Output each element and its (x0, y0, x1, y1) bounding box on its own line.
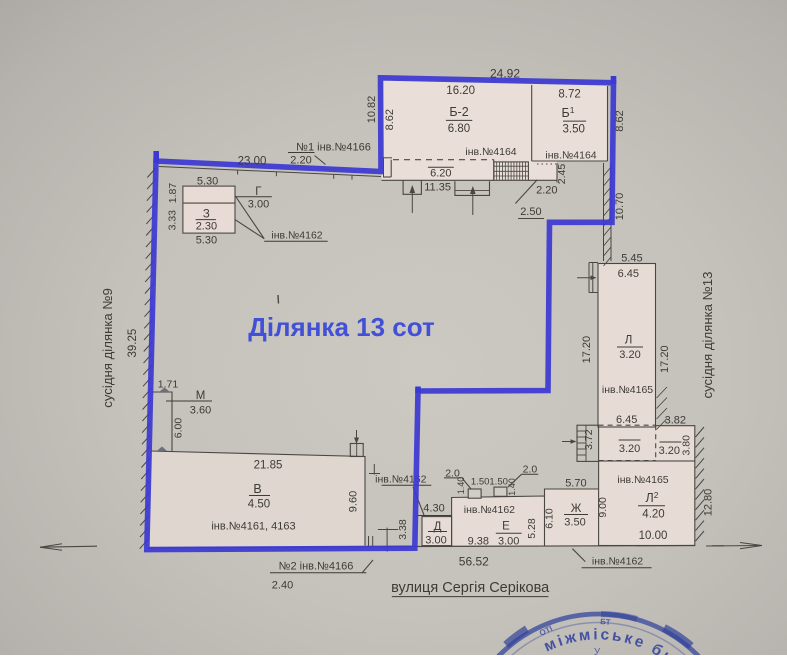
svg-text:сусідня ділянка №9: сусідня ділянка №9 (100, 288, 115, 408)
svg-text:№1 інв.№4166: №1 інв.№4166 (296, 142, 371, 154)
svg-text:3.00: 3.00 (248, 199, 269, 211)
svg-text:3.38: 3.38 (397, 519, 409, 540)
svg-text:Ділянка 13 сот: Ділянка 13 сот (248, 312, 435, 342)
svg-text:Г: Г (255, 186, 262, 198)
svg-text:інв.№4161, 4163: інв.№4161, 4163 (211, 521, 295, 533)
svg-text:3.72: 3.72 (583, 429, 595, 450)
svg-text:10.82: 10.82 (366, 96, 378, 124)
svg-text:1.71: 1.71 (158, 379, 179, 391)
svg-text:З: З (203, 209, 210, 221)
svg-text:3.20: 3.20 (619, 349, 640, 361)
svg-text:3.20: 3.20 (619, 443, 640, 455)
svg-text:3.80: 3.80 (681, 435, 693, 456)
svg-text:5.30: 5.30 (196, 234, 217, 246)
svg-text:8.62: 8.62 (384, 109, 396, 130)
svg-text:5.28: 5.28 (526, 518, 538, 539)
svg-text:У: У (594, 647, 601, 655)
svg-text:Л: Л (625, 335, 633, 347)
svg-text:3.60: 3.60 (190, 405, 211, 417)
svg-text:сусідня ділянка №13: сусідня ділянка №13 (700, 272, 715, 399)
svg-text:8.72: 8.72 (558, 89, 580, 101)
svg-text:4.50: 4.50 (248, 499, 270, 511)
svg-text:6.80: 6.80 (448, 123, 470, 135)
svg-text:5.30: 5.30 (197, 176, 218, 188)
svg-text:17.20: 17.20 (581, 336, 593, 364)
svg-text:інв.№4162: інв.№4162 (271, 230, 322, 242)
svg-text:2.50: 2.50 (520, 206, 541, 218)
svg-text:інв.№4165: інв.№4165 (617, 474, 668, 486)
svg-text:Ж: Ж (571, 503, 582, 515)
svg-text:2.20: 2.20 (536, 185, 557, 197)
svg-text:6.45: 6.45 (618, 268, 639, 280)
svg-text:39.25: 39.25 (127, 329, 139, 358)
svg-text:інв.№4162: інв.№4162 (464, 504, 515, 516)
svg-text:інв.№4162: інв.№4162 (592, 556, 643, 568)
svg-text:6.00: 6.00 (173, 418, 185, 439)
svg-text:6.45: 6.45 (616, 414, 637, 426)
svg-text:інв.№4164: інв.№4164 (465, 146, 516, 158)
svg-text:3.33: 3.33 (167, 210, 179, 231)
svg-text:3.50: 3.50 (563, 124, 585, 136)
svg-text:3.50: 3.50 (564, 517, 585, 529)
svg-text:БТ: БТ (600, 617, 611, 627)
svg-text:3.00: 3.00 (425, 535, 446, 547)
svg-text:6.20: 6.20 (430, 168, 451, 180)
svg-text:1.87: 1.87 (167, 183, 179, 204)
svg-text:Б-2: Б-2 (449, 105, 468, 119)
svg-text:4.30: 4.30 (423, 503, 444, 515)
svg-text:5.45: 5.45 (621, 252, 642, 264)
svg-text:№2 інв.№4166: №2 інв.№4166 (279, 561, 354, 573)
svg-text:11.35: 11.35 (424, 182, 451, 194)
svg-text:10.70: 10.70 (614, 193, 626, 221)
svg-text:В: В (253, 482, 261, 496)
svg-text:16.20: 16.20 (446, 85, 475, 97)
svg-text:17.20: 17.20 (659, 345, 671, 373)
svg-text:вулиця Сергія Серікова: вулиця Сергія Серікова (391, 580, 550, 596)
svg-text:56.52: 56.52 (459, 555, 489, 569)
svg-text:2.30: 2.30 (196, 220, 217, 232)
svg-text:9.60: 9.60 (348, 491, 360, 512)
svg-text:12.80: 12.80 (703, 489, 715, 517)
svg-text:6.10: 6.10 (544, 508, 556, 529)
svg-text:2.40: 2.40 (272, 580, 293, 592)
svg-text:10.00: 10.00 (639, 530, 668, 542)
svg-text:2.20: 2.20 (290, 155, 311, 167)
svg-text:4.20: 4.20 (642, 509, 664, 521)
svg-text:21.85: 21.85 (254, 460, 283, 472)
svg-text:інв.№4165: інв.№4165 (602, 384, 653, 396)
svg-text:23.00: 23.00 (238, 156, 267, 168)
svg-text:інв.№4164: інв.№4164 (545, 150, 596, 162)
svg-text:М: М (196, 390, 206, 402)
svg-text:3.20: 3.20 (659, 445, 680, 457)
svg-text:1.501.50: 1.501.50 (471, 477, 508, 488)
svg-text:3.00: 3.00 (498, 535, 519, 547)
svg-text:2.45: 2.45 (556, 164, 568, 185)
svg-text:5.70: 5.70 (565, 478, 586, 490)
svg-text:3.82: 3.82 (665, 415, 686, 427)
svg-text:Е: Е (502, 521, 510, 533)
